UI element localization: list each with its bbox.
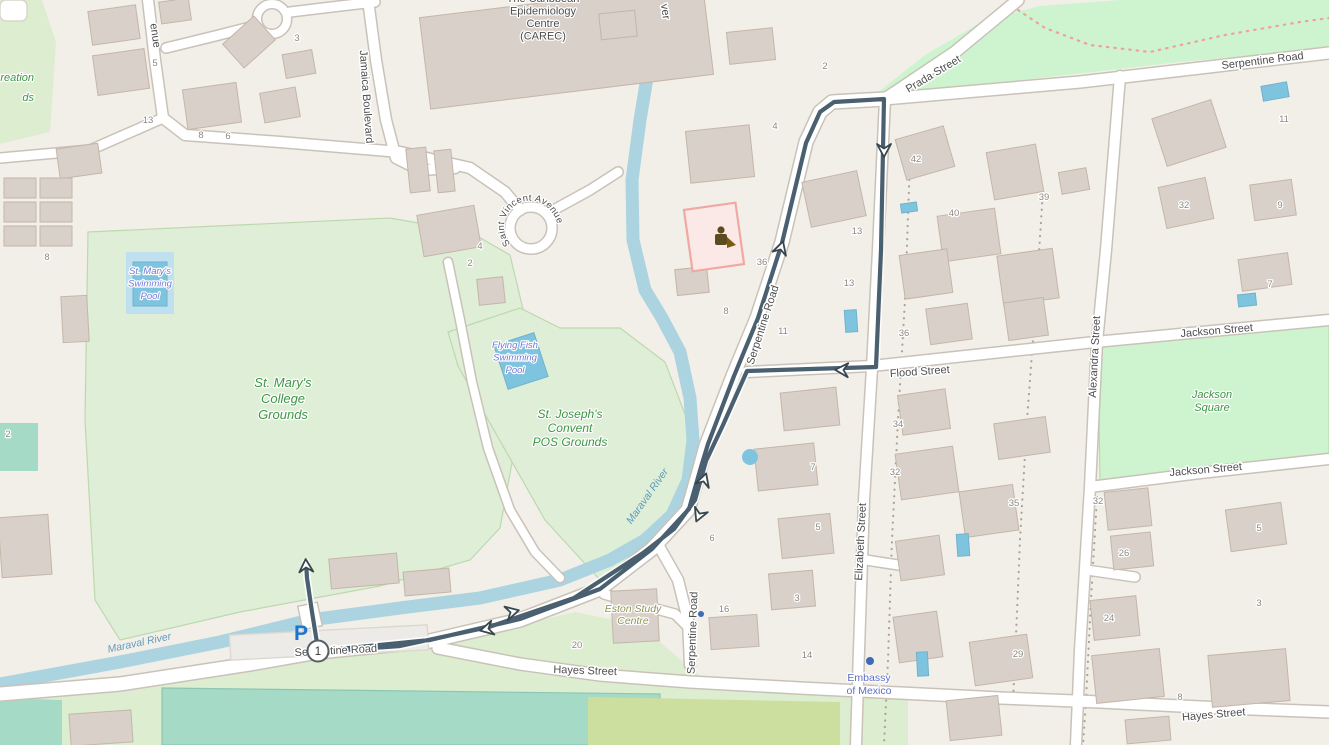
- building: [1092, 649, 1165, 704]
- house-number: 13: [143, 115, 154, 126]
- college-grounds-label: College: [261, 391, 305, 406]
- college-grounds-label: St. Mary's: [254, 375, 312, 390]
- st-marys-pool-label: St. Mary's: [129, 266, 171, 277]
- pond: [742, 449, 758, 465]
- white-corner-card: [0, 0, 27, 21]
- building: [4, 226, 36, 246]
- map-canvas[interactable]: Prada StreetSerpentine RoadSerpentine Ro…: [0, 0, 1329, 745]
- embassy-of-mexico-label: of Mexico: [847, 685, 892, 697]
- building: [1238, 253, 1292, 292]
- pitch-bottom-large: [162, 688, 660, 745]
- house-number: 32: [1179, 200, 1190, 211]
- house-number: 8: [44, 252, 49, 263]
- building: [1004, 297, 1049, 340]
- college-grounds-label: Grounds: [258, 407, 308, 422]
- house-number: 3: [294, 33, 299, 44]
- house-number: 11: [1279, 114, 1289, 125]
- house-number: 35: [1009, 498, 1020, 509]
- eston-study-centre-label: Centre: [617, 615, 649, 627]
- building: [769, 570, 816, 610]
- house-number: 7: [810, 462, 815, 473]
- swimming-pool: [900, 202, 917, 213]
- house-number: 3: [1256, 598, 1261, 609]
- school-icon: [715, 234, 727, 245]
- house-number: 36: [757, 257, 768, 268]
- swimming-pool: [916, 652, 928, 677]
- recreation-fragment: ds: [22, 92, 34, 104]
- eston-study-centre-label: Eston Study: [605, 603, 662, 615]
- building: [1104, 488, 1152, 530]
- building: [726, 28, 775, 65]
- building: [1110, 532, 1153, 570]
- house-number: 5: [152, 58, 157, 69]
- building: [329, 553, 399, 589]
- house-number: 8: [723, 306, 728, 317]
- building: [0, 514, 52, 577]
- building: [40, 178, 72, 198]
- flying-fish-pool-label: Swimming: [493, 353, 538, 364]
- recreation-fragment: reation: [0, 72, 34, 84]
- house-number: 5: [815, 522, 820, 533]
- building: [56, 143, 102, 179]
- house-number: 42: [911, 154, 922, 165]
- building: [159, 0, 192, 24]
- poi-dot-icon: [698, 611, 704, 617]
- house-number: 36: [899, 328, 910, 339]
- building: [477, 277, 506, 306]
- building: [61, 295, 89, 342]
- pitch-bottom-corner: [0, 698, 62, 745]
- building: [969, 634, 1033, 686]
- swimming-pool: [956, 534, 970, 557]
- building: [959, 484, 1019, 537]
- carec-label: (CAREC): [520, 31, 566, 43]
- parking-icon: P: [294, 622, 308, 645]
- house-number: 13: [852, 226, 863, 237]
- carec-label: The Caribbean: [507, 0, 580, 5]
- building: [92, 49, 149, 96]
- house-number: 2: [5, 429, 10, 440]
- building: [599, 10, 638, 40]
- house-number: 8: [198, 130, 203, 141]
- building: [4, 178, 36, 198]
- house-number: 34: [893, 419, 904, 430]
- building: [1208, 649, 1290, 708]
- street-label: Hayes Street: [553, 664, 617, 678]
- jackson-square-label: Jackson: [1191, 389, 1232, 401]
- building: [709, 614, 759, 649]
- house-number: 13: [844, 278, 855, 289]
- building: [685, 125, 754, 183]
- house-number: 9: [1277, 200, 1282, 211]
- flying-fish-pool-label: Flying Fish: [492, 340, 538, 351]
- building: [1250, 179, 1297, 220]
- house-number: 6: [709, 533, 714, 544]
- carec-label: Epidemiology: [510, 6, 577, 18]
- house-number: 32: [890, 467, 901, 478]
- convent-grounds-label: Convent: [548, 421, 593, 435]
- building: [1090, 596, 1140, 641]
- house-number: 6: [225, 131, 230, 142]
- building: [946, 695, 1002, 740]
- st-marys-pool-label: Pool: [140, 291, 160, 302]
- convent-grounds-label: POS Grounds: [533, 435, 608, 449]
- convent-grounds-label: St. Joseph's: [538, 407, 603, 421]
- embassy-of-mexico-label: Embassy: [847, 672, 891, 684]
- school-icon: [717, 226, 724, 233]
- building: [754, 443, 818, 491]
- building: [4, 202, 36, 222]
- building: [780, 387, 840, 431]
- building: [40, 226, 72, 246]
- openstreetmap-route-view[interactable]: Prada StreetSerpentine RoadSerpentine Ro…: [0, 0, 1329, 745]
- house-number: 8: [1177, 692, 1182, 703]
- house-number: 7: [1267, 279, 1272, 290]
- school-building: [684, 203, 744, 272]
- building: [778, 513, 834, 558]
- jackson-square-label: Square: [1194, 402, 1229, 414]
- house-number: 14: [802, 650, 813, 661]
- house-number: 2: [467, 258, 472, 269]
- house-number: 26: [1119, 548, 1130, 559]
- house-number: 20: [572, 640, 583, 651]
- building: [994, 417, 1051, 460]
- building: [282, 50, 316, 79]
- building: [986, 144, 1044, 200]
- route-start-number: 1: [315, 646, 321, 658]
- house-number: 24: [1104, 613, 1115, 624]
- building: [182, 82, 241, 129]
- house-number: 39: [1039, 192, 1050, 203]
- st-marys-pool-label: Swimming: [128, 279, 173, 290]
- house-number: 3: [794, 593, 799, 604]
- house-number: 4: [477, 241, 482, 252]
- building: [1125, 716, 1171, 744]
- house-number: 16: [719, 604, 730, 615]
- building: [899, 249, 953, 299]
- building: [403, 568, 451, 596]
- building: [926, 303, 973, 344]
- building: [406, 147, 430, 193]
- building: [895, 535, 944, 581]
- building: [88, 5, 140, 45]
- house-number: 4: [772, 121, 777, 132]
- house-number: 40: [949, 208, 960, 219]
- house-number: 5: [1256, 523, 1261, 534]
- house-number: 2: [822, 61, 827, 72]
- swimming-pool: [844, 310, 858, 333]
- building: [1058, 168, 1089, 195]
- pitch-bottom-green: [588, 697, 840, 745]
- swimming-pool: [1237, 293, 1256, 307]
- carec-label: Centre: [526, 18, 559, 30]
- building: [69, 710, 133, 745]
- house-number: 32: [1093, 496, 1104, 507]
- building: [897, 389, 950, 435]
- building: [997, 248, 1059, 305]
- flying-fish-pool-label: Pool: [505, 365, 525, 376]
- street-label: ver: [658, 3, 672, 20]
- embassy-dot-icon: [866, 657, 874, 665]
- house-number: 29: [1013, 649, 1024, 660]
- building: [260, 87, 301, 123]
- building: [40, 202, 72, 222]
- house-number: 11: [778, 326, 788, 337]
- building: [895, 446, 959, 500]
